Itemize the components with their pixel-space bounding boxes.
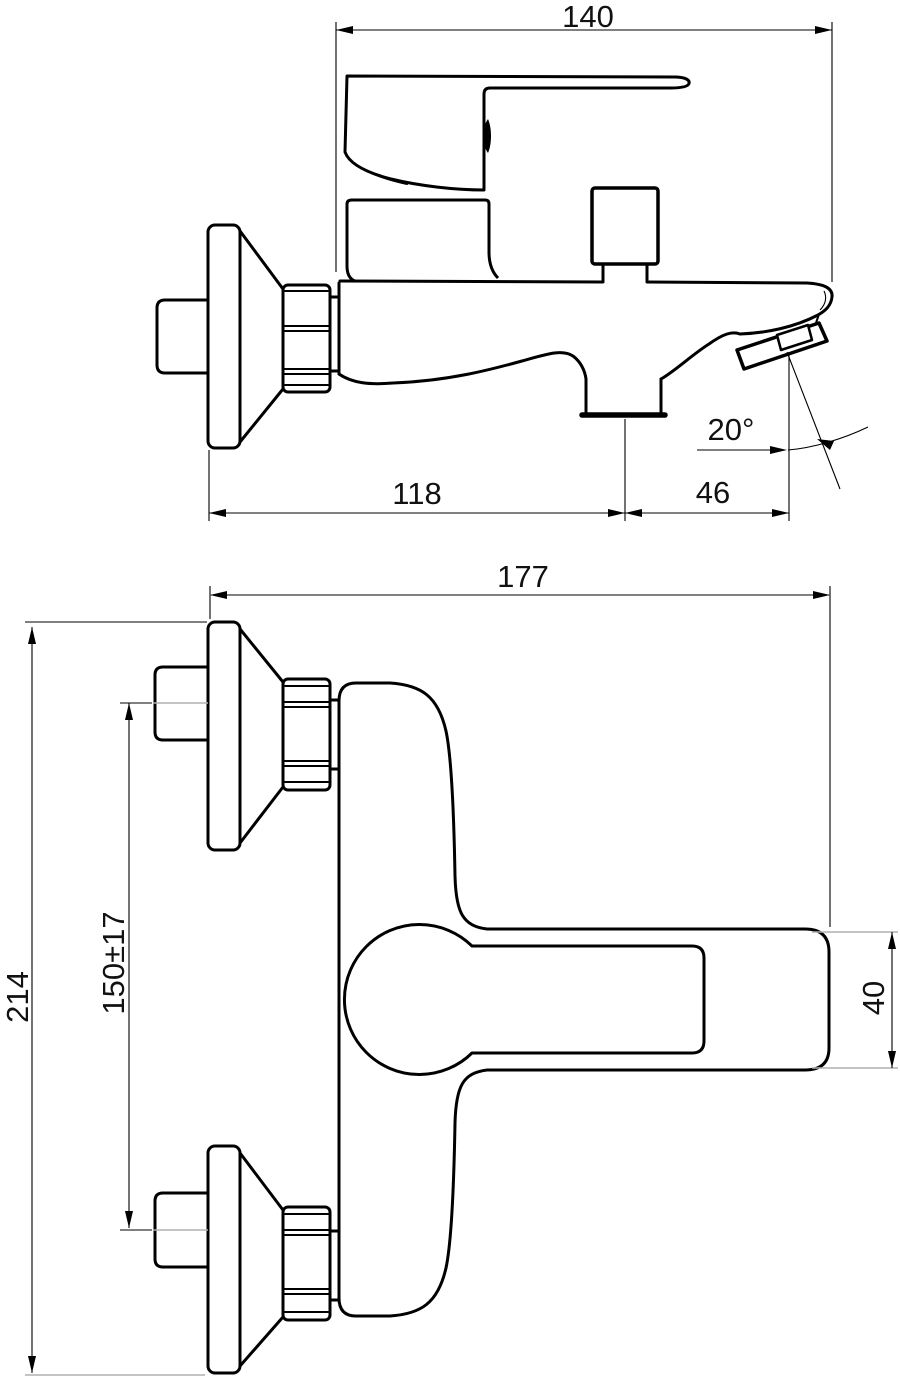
side-body-underside [339, 353, 586, 384]
side-body-spout [339, 281, 832, 415]
plan-view: 177 214 150±17 40 [0, 559, 898, 1375]
side-escutcheon-cone [240, 231, 283, 442]
dim-140-label: 140 [562, 0, 614, 34]
dim-118-label: 118 [392, 476, 441, 511]
plan-upper-cone [240, 629, 283, 843]
technical-drawing-page: 140 118 46 20° [0, 0, 900, 1378]
side-hex-nut [283, 285, 330, 392]
side-escutcheon-plate [208, 225, 240, 448]
side-cartridge-housing [347, 200, 498, 281]
plan-lower-cone [240, 1153, 283, 1366]
plan-lever-keyhole [344, 925, 704, 1075]
side-lever-handle [345, 76, 689, 190]
dim-214-label: 214 [0, 971, 35, 1023]
dim-46-label: 46 [696, 475, 730, 510]
dim-150-17: 150±17 [96, 703, 208, 1230]
plan-lower-hex-nut [283, 1207, 330, 1320]
plan-upper-hex-nut [283, 679, 330, 790]
dim-20deg-label: 20° [708, 412, 755, 447]
dim-150-label: 150±17 [96, 911, 131, 1014]
plan-upper-escutcheon-plate [208, 622, 240, 850]
dim-angle-20: 20° [697, 352, 868, 489]
side-view: 140 118 46 20° [157, 0, 868, 521]
side-diverter-knob [592, 188, 658, 281]
dim-177-label: 177 [497, 559, 549, 594]
side-spout-end-curl [807, 283, 832, 315]
side-bottom-outlet [586, 379, 661, 414]
plan-lower-escutcheon-plate [208, 1146, 240, 1373]
dim-40-label: 40 [856, 981, 891, 1015]
faucet-dimension-drawing: 140 118 46 20° [0, 0, 900, 1378]
side-wall-stub [157, 300, 208, 373]
